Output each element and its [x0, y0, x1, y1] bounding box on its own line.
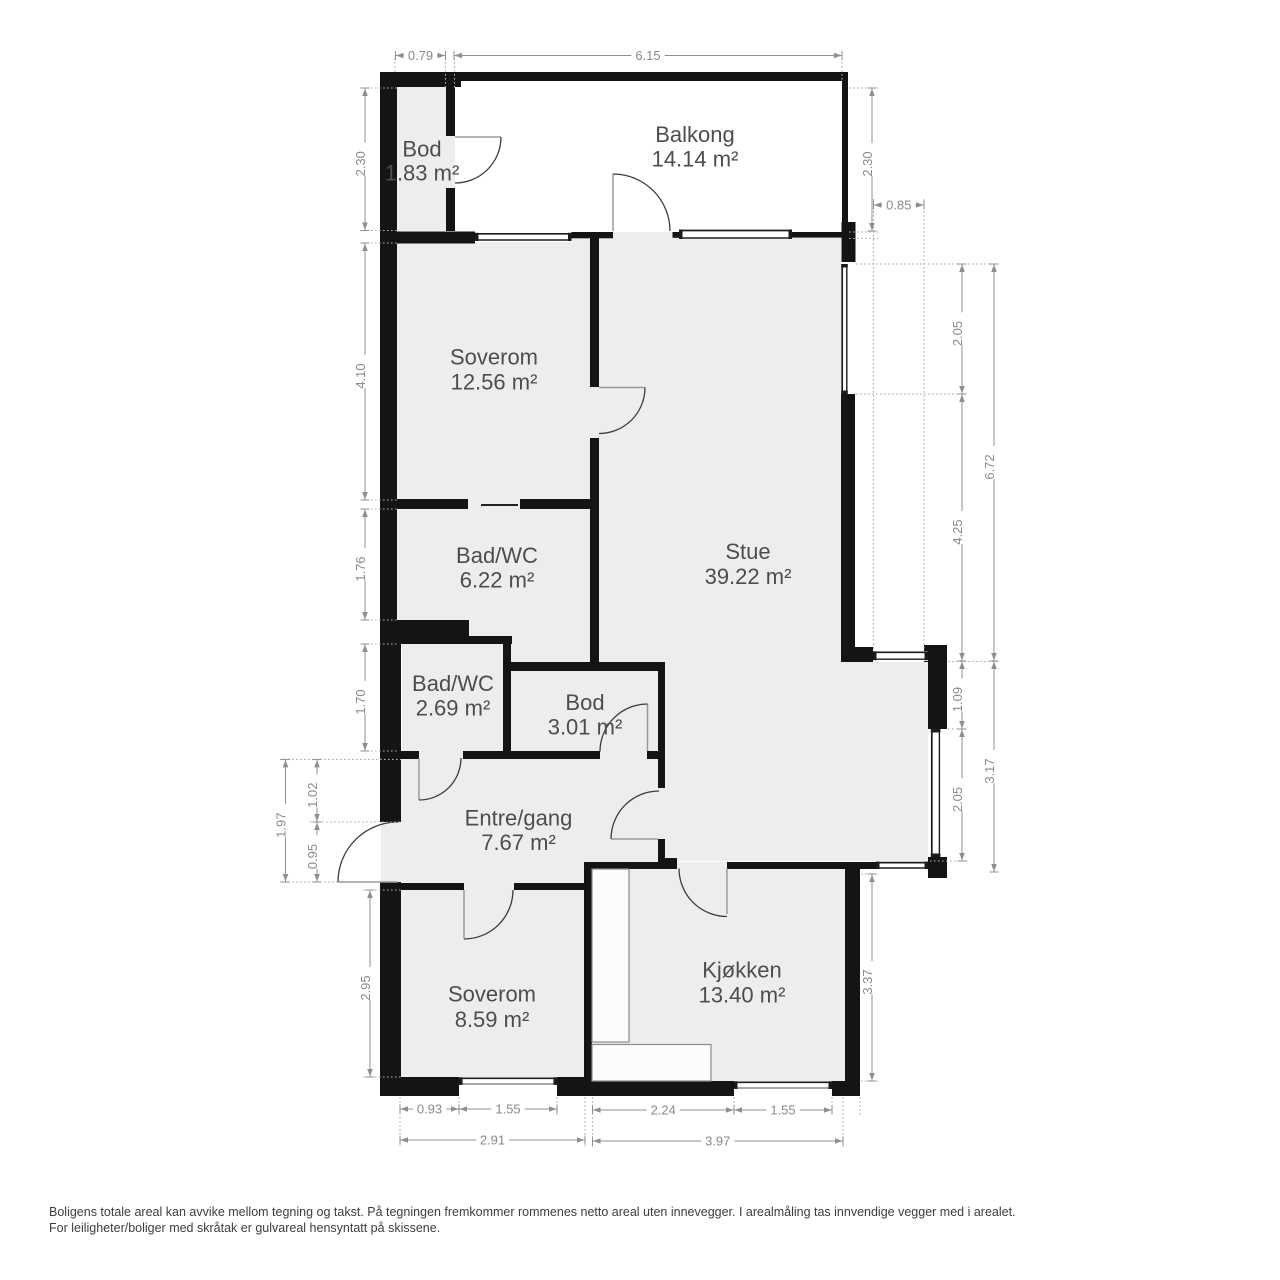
svg-text:2.05: 2.05: [950, 787, 965, 812]
svg-text:Stue: Stue: [725, 539, 770, 564]
svg-text:0.95: 0.95: [305, 844, 320, 869]
svg-text:3.97: 3.97: [705, 1134, 730, 1149]
svg-text:6.72: 6.72: [982, 454, 997, 479]
svg-text:14.14 m²: 14.14 m²: [652, 147, 739, 172]
svg-text:Soverom: Soverom: [448, 982, 536, 1007]
svg-text:39.22 m²: 39.22 m²: [705, 564, 792, 589]
svg-text:Balkong: Balkong: [655, 122, 735, 147]
svg-text:For leiligheter/boliger med sk: For leiligheter/boliger med skråtak er g…: [49, 1221, 440, 1235]
svg-text:2.91: 2.91: [480, 1133, 505, 1148]
svg-text:1.55: 1.55: [495, 1102, 520, 1117]
svg-text:4.10: 4.10: [353, 363, 368, 388]
svg-text:0.93: 0.93: [417, 1102, 442, 1117]
svg-text:8.59 m²: 8.59 m²: [455, 1007, 530, 1032]
svg-text:Kjøkken: Kjøkken: [702, 958, 781, 983]
svg-text:Boligens totale areal kan avvi: Boligens totale areal kan avvike mellom …: [49, 1205, 1016, 1219]
svg-text:13.40 m²: 13.40 m²: [699, 983, 786, 1008]
svg-text:1.55: 1.55: [770, 1103, 795, 1118]
svg-text:1.97: 1.97: [274, 813, 289, 838]
svg-text:1.70: 1.70: [353, 689, 368, 714]
svg-text:Entre/gang: Entre/gang: [465, 806, 573, 831]
svg-text:1.02: 1.02: [305, 783, 320, 808]
svg-text:Bod: Bod: [402, 137, 441, 162]
svg-text:Soverom: Soverom: [450, 345, 538, 370]
svg-text:1.09: 1.09: [950, 687, 965, 712]
svg-text:2.69 m²: 2.69 m²: [416, 696, 491, 721]
svg-text:1.76: 1.76: [353, 556, 368, 581]
svg-text:3.01 m²: 3.01 m²: [548, 715, 623, 740]
svg-text:3.37: 3.37: [860, 969, 875, 994]
svg-text:12.56 m²: 12.56 m²: [451, 370, 538, 395]
svg-text:3.17: 3.17: [982, 758, 997, 783]
svg-text:1.83 m²: 1.83 m²: [385, 161, 460, 186]
svg-text:2.95: 2.95: [358, 975, 373, 1000]
svg-text:6.22 m²: 6.22 m²: [460, 568, 535, 593]
svg-text:2.30: 2.30: [353, 151, 368, 176]
svg-text:6.15: 6.15: [635, 48, 660, 63]
svg-text:2.24: 2.24: [651, 1103, 676, 1118]
svg-text:2.30: 2.30: [860, 151, 875, 176]
svg-text:2.05: 2.05: [950, 321, 965, 346]
svg-text:4.25: 4.25: [950, 519, 965, 544]
svg-text:Bad/WC: Bad/WC: [456, 543, 538, 568]
svg-text:0.79: 0.79: [408, 48, 433, 63]
svg-text:Bod: Bod: [565, 690, 604, 715]
svg-text:Bad/WC: Bad/WC: [412, 671, 494, 696]
svg-text:0.85: 0.85: [886, 198, 911, 213]
svg-text:7.67 m²: 7.67 m²: [481, 830, 556, 855]
